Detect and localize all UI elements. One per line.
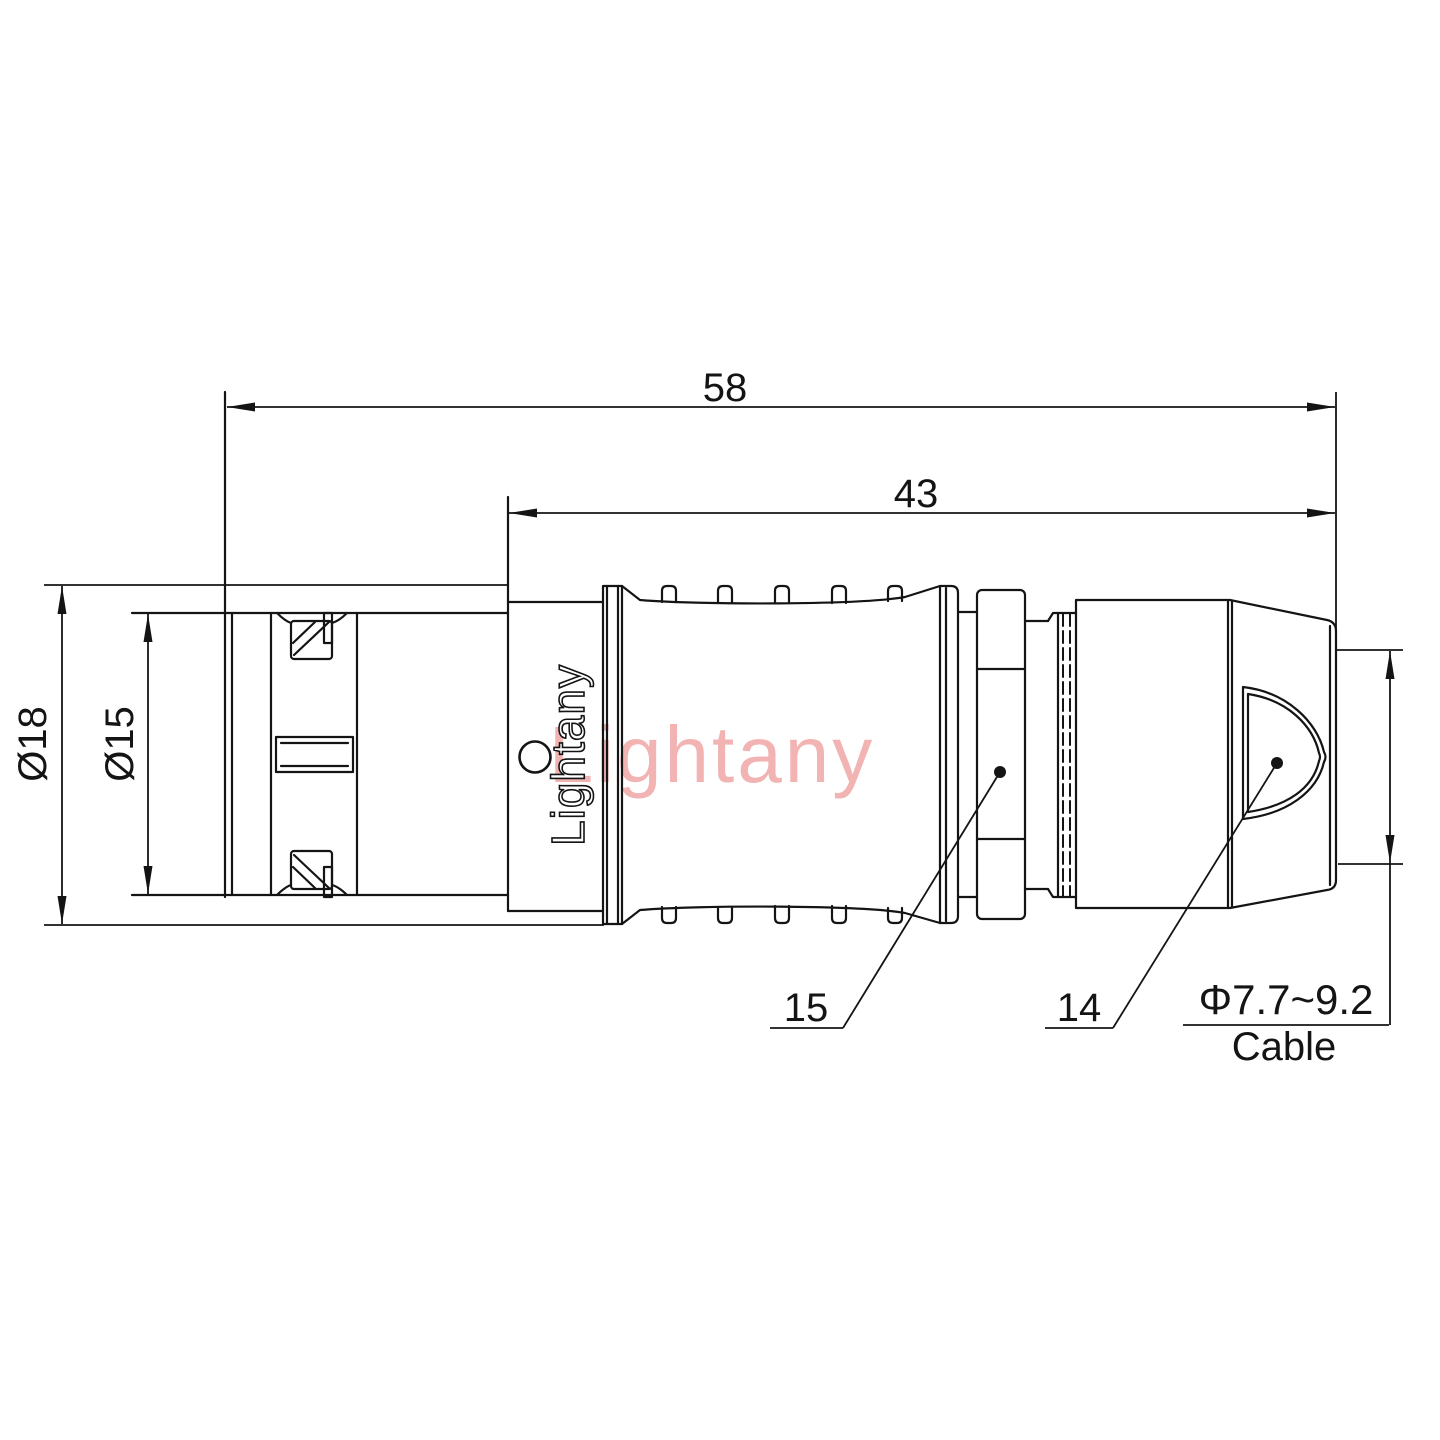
leader-dot-15 [994, 766, 1006, 778]
front-diameter-label: Ø15 [98, 706, 142, 782]
cable-diameter-label: Φ7.7~9.2 [1199, 976, 1374, 1023]
rear-length-label: 43 [894, 472, 939, 516]
technical-drawing-canvas: Lightany [0, 0, 1440, 1440]
connector-drawing-page: Lightany [0, 0, 1440, 1440]
part-number-boot-label: 14 [1057, 986, 1102, 1030]
brand-text: Lightany [542, 664, 594, 846]
leader-dot-14 [1271, 757, 1283, 769]
part-number-nut-label: 15 [784, 986, 829, 1030]
overall-length-label: 58 [703, 366, 748, 410]
outer-diameter-label: Ø18 [11, 706, 55, 782]
watermark-text: Lightany [549, 710, 875, 799]
cable-word-label: Cable [1232, 1025, 1337, 1069]
